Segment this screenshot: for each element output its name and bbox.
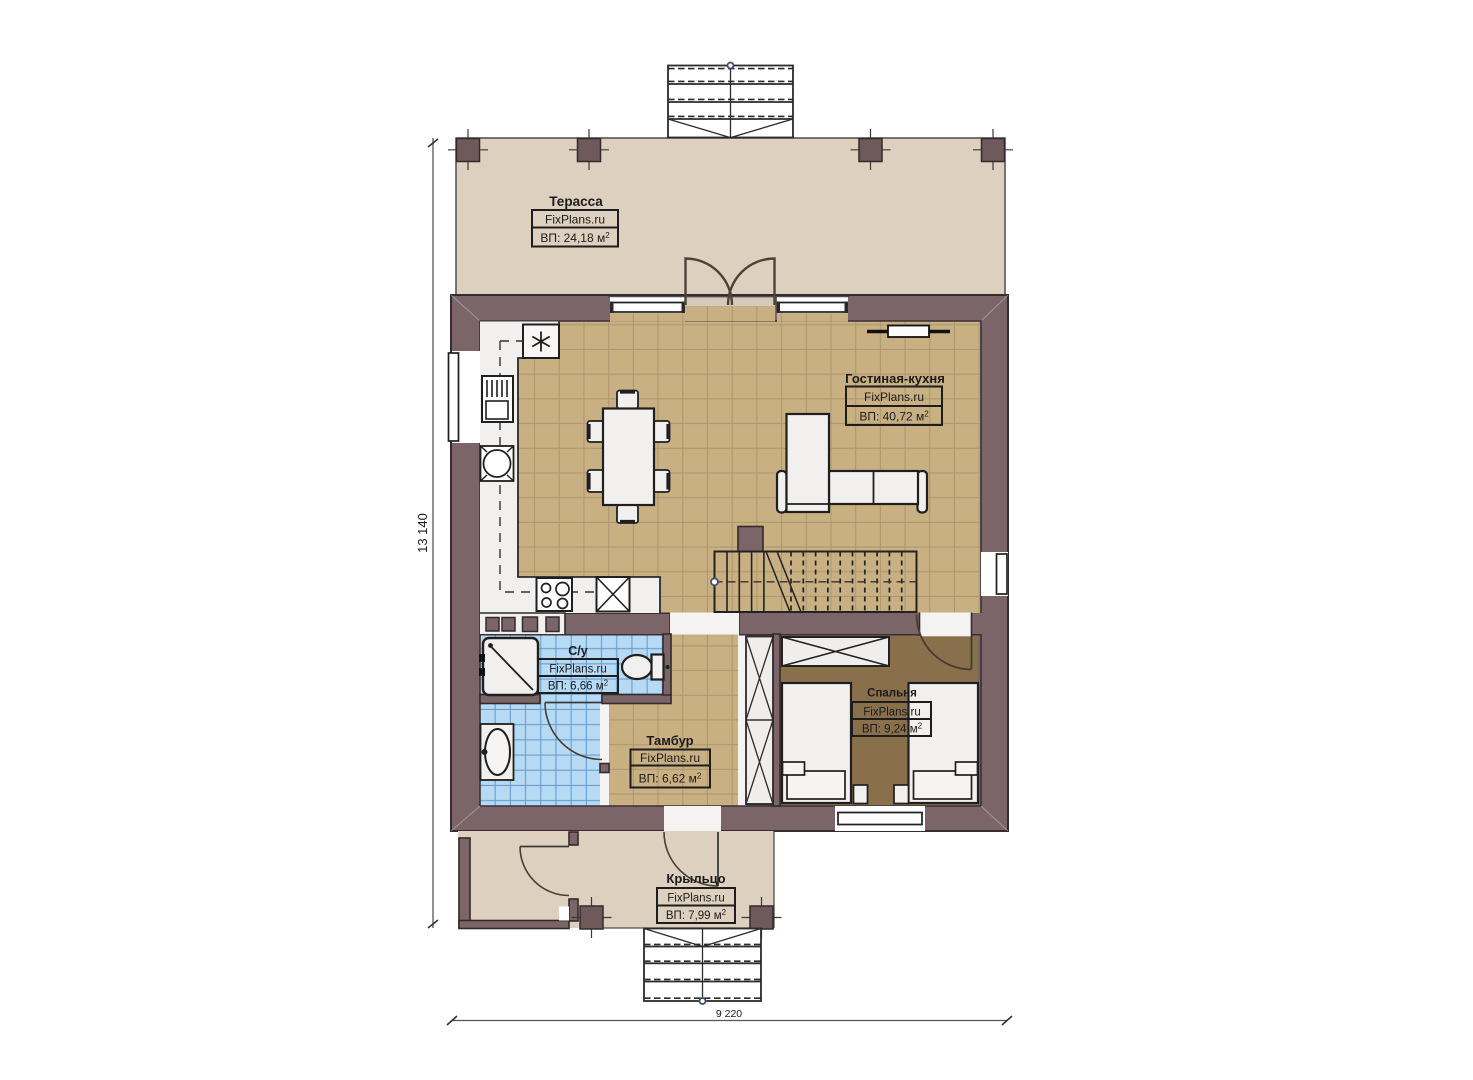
- svg-text:FixPlans.ru: FixPlans.ru: [864, 390, 924, 404]
- svg-text:FixPlans.ru: FixPlans.ru: [545, 213, 605, 227]
- svg-text:FixPlans.ru: FixPlans.ru: [667, 893, 725, 905]
- svg-text:Крыльцо: Крыльцо: [666, 871, 725, 886]
- svg-text:13 140: 13 140: [415, 513, 430, 553]
- svg-text:С/у: С/у: [568, 644, 588, 658]
- svg-text:ВП: 6,62 м2: ВП: 6,62 м2: [639, 771, 702, 786]
- svg-text:ВП: 7,99 м2: ВП: 7,99 м2: [666, 908, 727, 923]
- svg-text:FixPlans.ru: FixPlans.ru: [549, 664, 607, 676]
- svg-text:ВП: 24,18 м2: ВП: 24,18 м2: [540, 231, 610, 246]
- svg-text:FixPlans.ru: FixPlans.ru: [863, 707, 921, 719]
- svg-text:Гостиная-кухня: Гостиная-кухня: [845, 371, 945, 386]
- svg-text:Спальня: Спальня: [867, 688, 917, 700]
- svg-text:Терасса: Терасса: [549, 194, 603, 209]
- svg-text:ВП: 6,66 м2: ВП: 6,66 м2: [548, 678, 609, 693]
- svg-text:Тамбур: Тамбур: [646, 733, 693, 748]
- svg-text:FixPlans.ru: FixPlans.ru: [640, 751, 700, 765]
- svg-text:ВП: 40,72 м2: ВП: 40,72 м2: [859, 409, 929, 424]
- svg-text:ВП: 9,24 м2: ВП: 9,24 м2: [862, 721, 923, 736]
- svg-text:9 220: 9 220: [716, 1008, 742, 1020]
